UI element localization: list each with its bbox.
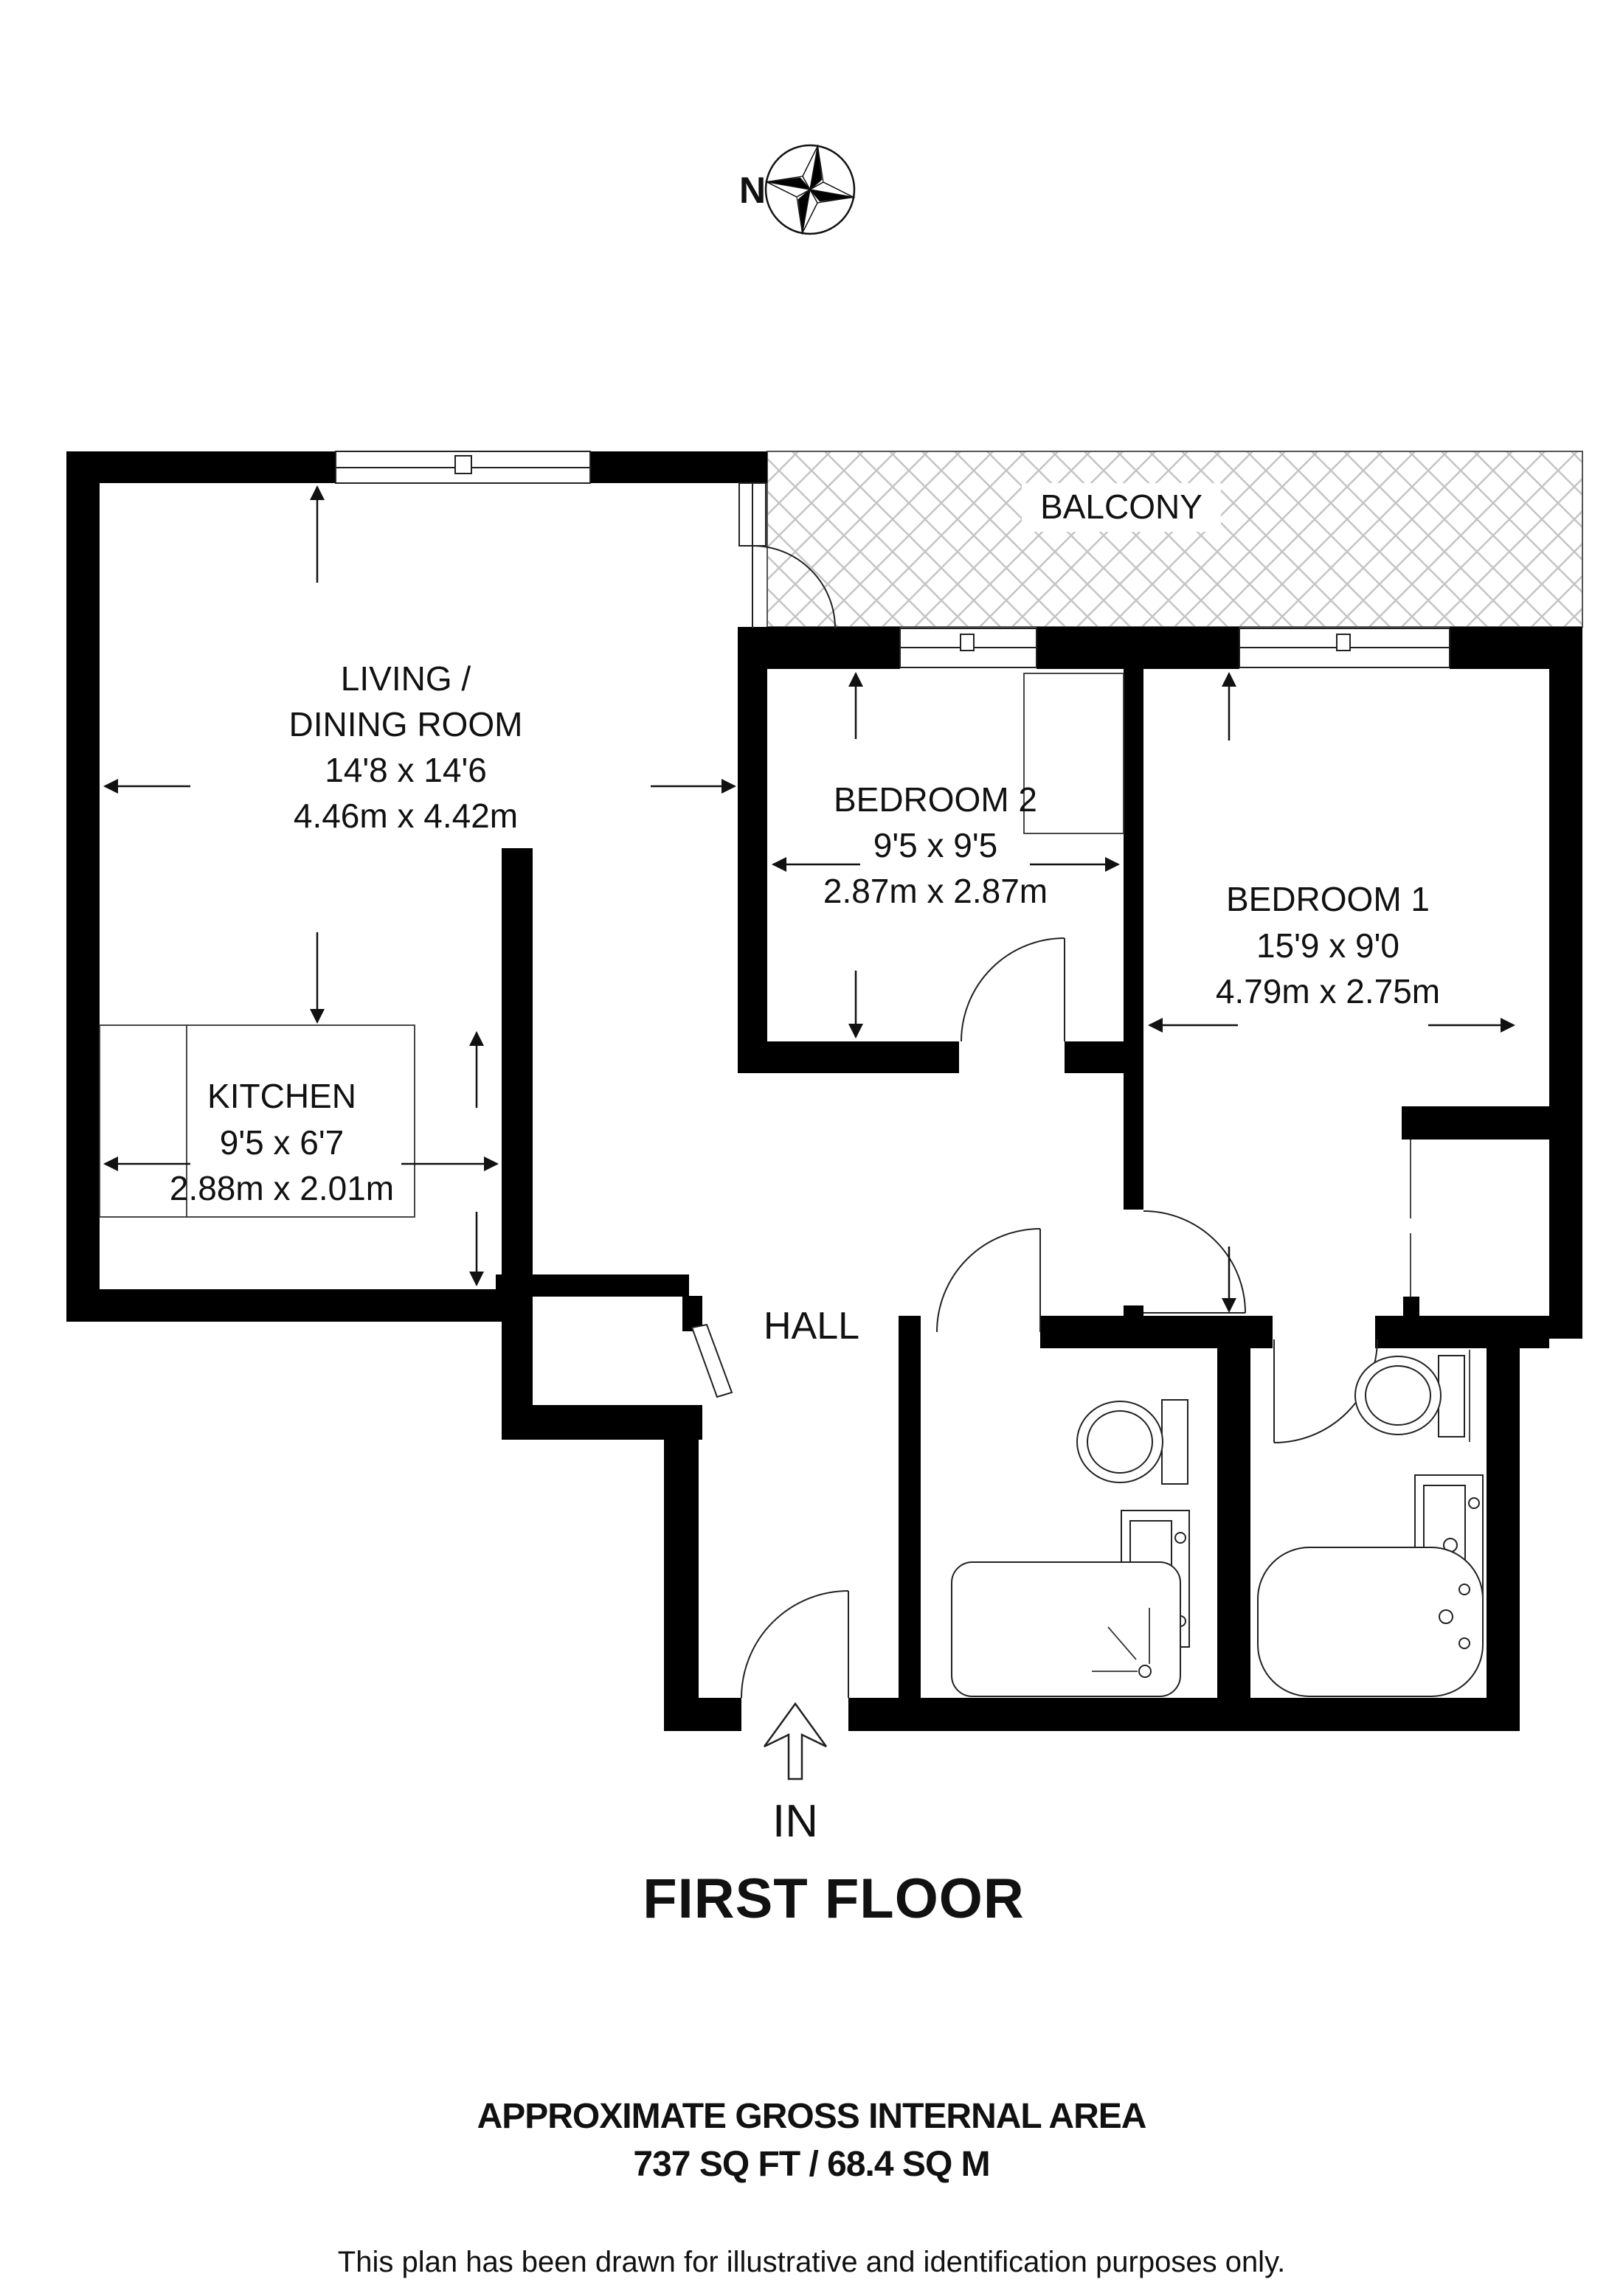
living-room-imperial: 14'8 x 14'6 — [325, 751, 487, 789]
kitchen-imperial: 9'5 x 6'7 — [220, 1123, 344, 1162]
compass-icon: N — [739, 138, 862, 240]
bedroom1-closet-front — [1403, 1140, 1419, 1316]
living-window — [336, 451, 590, 483]
doors — [692, 546, 1377, 1698]
bedroom1-window — [1239, 628, 1450, 667]
bedroom2-imperial: 9'5 x 9'5 — [873, 826, 997, 864]
toilet-icon — [1077, 1400, 1188, 1484]
footer-area-value: 737 SQ FT / 68.4 SQ M — [633, 2145, 989, 2184]
entry-arrow-icon — [764, 1704, 826, 1779]
footer-area-heading: APPROXIMATE GROSS INTERNAL AREA — [477, 2097, 1146, 2136]
balcony-label: BALCONY — [1040, 488, 1202, 526]
living-room-metric: 4.46m x 4.42m — [294, 797, 518, 835]
bedroom2-metric: 2.87m x 2.87m — [823, 872, 1048, 910]
bedroom2-wardrobe — [1024, 673, 1124, 833]
balcony-side-window — [739, 483, 766, 546]
toilet-icon — [1355, 1350, 1470, 1442]
footer-disclaimer: This plan has been drawn for illustrativ… — [338, 2246, 1285, 2278]
living-room-name-line1: LIVING / — [341, 659, 471, 698]
entry-door — [741, 1591, 848, 1698]
bathroom1-door — [937, 1229, 1040, 1332]
bathtub-icon — [1258, 1547, 1483, 1696]
compass-north-label: N — [739, 170, 766, 211]
hall-closet-door — [692, 1325, 732, 1397]
kitchen-name: KITCHEN — [207, 1077, 356, 1115]
hall-name: HALL — [764, 1305, 859, 1348]
bedroom1-metric: 4.79m x 2.75m — [1216, 972, 1440, 1010]
floorplan-canvas: N BALCONY — [0, 0, 1623, 2296]
balcony-area: BALCONY — [767, 451, 1582, 627]
bedroom1-name: BEDROOM 1 — [1226, 880, 1430, 918]
floor-title: FIRST FLOOR — [643, 1867, 1025, 1930]
bedroom1-door — [1143, 1211, 1245, 1313]
floorplan-page: N BALCONY — [0, 0, 1623, 2296]
kitchen-metric: 2.88m x 2.01m — [170, 1169, 394, 1207]
bedroom2-window — [900, 628, 1037, 667]
living-room-name-line2: DINING ROOM — [289, 705, 523, 743]
bedroom1-imperial: 15'9 x 9'0 — [1256, 926, 1399, 965]
bedroom2-door — [961, 938, 1065, 1041]
bathtub-shower-icon — [952, 1562, 1180, 1696]
bedroom2-name: BEDROOM 2 — [834, 780, 1037, 819]
entrance-label: IN — [772, 1796, 818, 1847]
